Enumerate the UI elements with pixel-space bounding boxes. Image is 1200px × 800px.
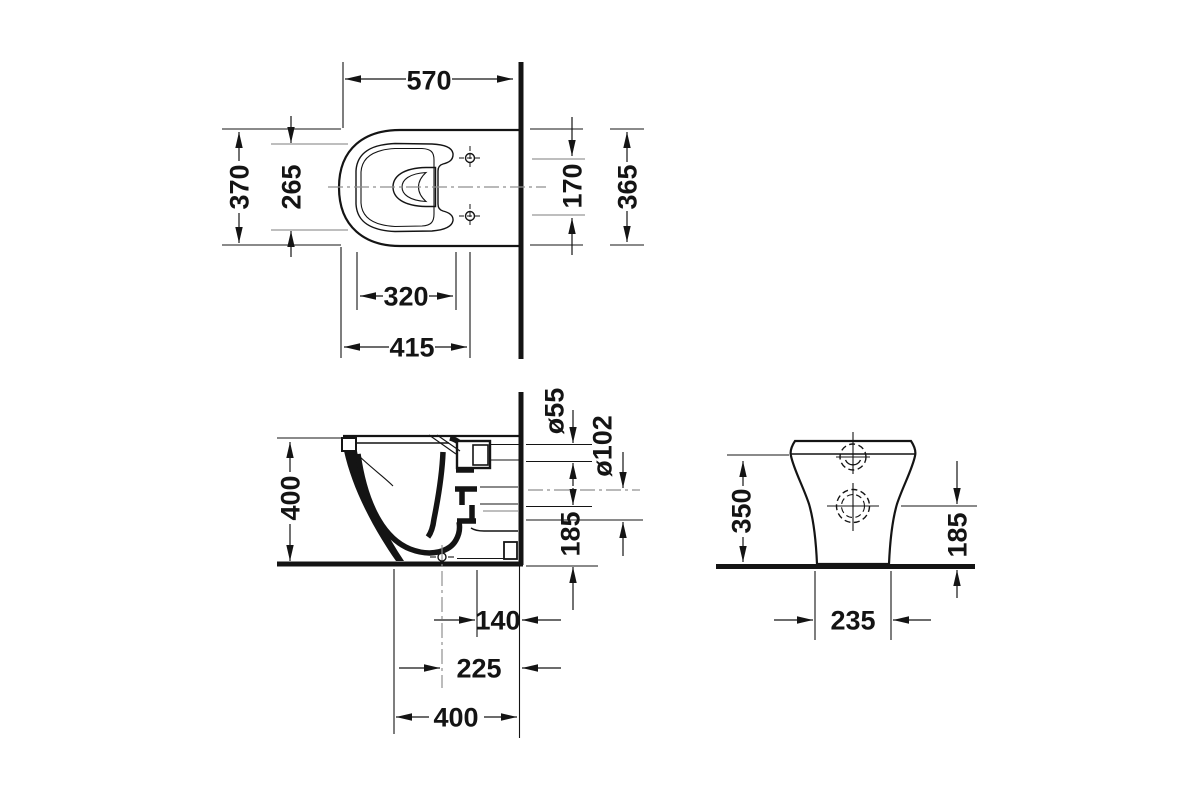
dimension-370: 370 [224, 132, 254, 243]
back-view: 350 185 235 [716, 432, 977, 640]
dim-label: 570 [406, 65, 451, 95]
dim-label: 370 [224, 164, 254, 209]
dimension-265: 265 [276, 116, 306, 257]
dimension-400-height: 400 [275, 442, 305, 561]
foot-outline [471, 528, 518, 531]
dimension-320: 320 [360, 281, 453, 311]
dim-label: 350 [726, 488, 756, 533]
dim-label: 365 [612, 164, 642, 209]
dim-label: 185 [942, 512, 972, 557]
dim-label: 415 [389, 332, 434, 362]
dim-label: 170 [557, 163, 587, 208]
toilet-dimension-drawing: 570 370 265 170 365 320 [0, 0, 1200, 800]
outlet-hole [827, 483, 879, 531]
hinge-hole-top [459, 146, 481, 170]
dimension-350: 350 [726, 461, 756, 562]
dimension-185-back: 185 [942, 461, 972, 598]
dim-label: ø102 [587, 415, 617, 477]
extension-lines [277, 438, 520, 738]
outlet-opening [504, 542, 517, 559]
dim-label: 140 [475, 605, 520, 635]
dimension-170: 170 [557, 117, 587, 255]
trap-wall [428, 452, 443, 537]
dimension-365: 365 [612, 132, 642, 242]
dim-label: ø55 [539, 388, 569, 435]
dimension-outlet-102: ø102 [587, 415, 623, 556]
hinge-hole-bottom [459, 204, 481, 228]
bowl-outline [339, 130, 521, 246]
dim-label: 265 [276, 164, 306, 209]
dim-label: 320 [383, 281, 428, 311]
rim-inner-line [361, 149, 434, 227]
dimension-415: 415 [344, 332, 467, 362]
dim-label: 185 [555, 511, 585, 556]
dimension-225: 225 [399, 653, 561, 683]
inlet-hole [836, 432, 870, 474]
inlet-bore [473, 445, 488, 465]
toilet-section [342, 435, 519, 561]
dim-label: 225 [456, 653, 501, 683]
dim-label: 400 [275, 475, 305, 520]
dimension-400-base: 400 [396, 702, 517, 732]
dim-label: 400 [433, 702, 478, 732]
dimension-140: 140 [434, 605, 561, 635]
side-view: 400 ø55 ø102 185 140 225 [275, 388, 643, 738]
dimension-570: 570 [345, 65, 513, 95]
top-view: 570 370 265 170 365 320 [222, 62, 644, 362]
technical-drawing-page: 570 370 265 170 365 320 [0, 0, 1200, 800]
dimension-inlet-55: ø55 [539, 388, 573, 486]
dimension-235: 235 [774, 605, 931, 635]
dim-label: 235 [830, 605, 875, 635]
